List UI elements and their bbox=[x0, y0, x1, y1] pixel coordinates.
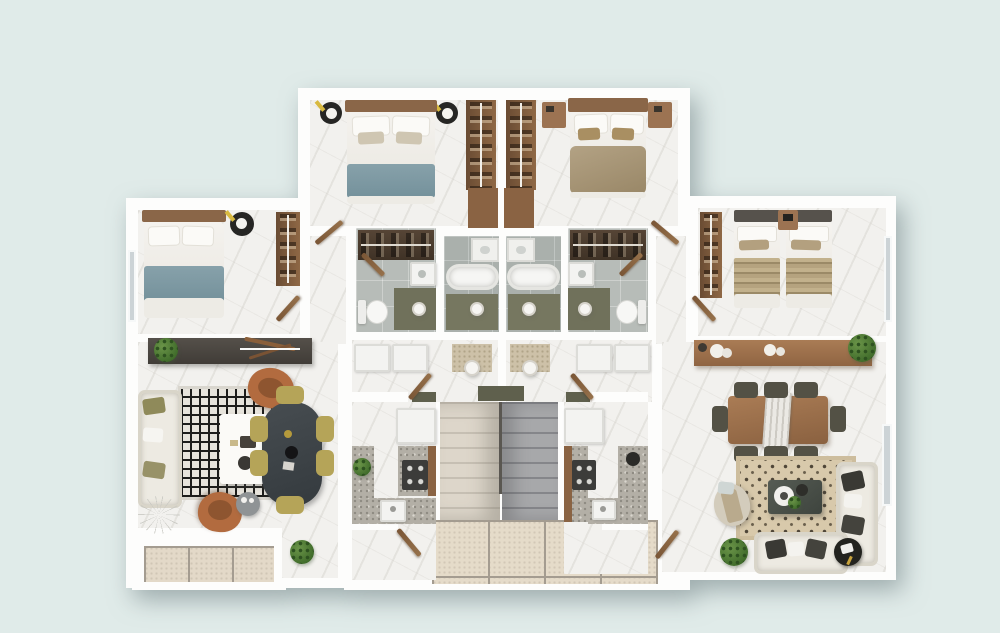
stove-a bbox=[402, 460, 428, 490]
bed-l-headboard bbox=[142, 210, 226, 222]
wardrobe-left-wing bbox=[276, 212, 300, 286]
dining-chair-a-right-2 bbox=[316, 450, 334, 476]
twin-bed-1-headboard bbox=[734, 210, 780, 222]
dining-chair-a-left-1 bbox=[250, 416, 268, 442]
bed-b-blanket-tan bbox=[570, 146, 646, 194]
floor-hall-a bbox=[310, 236, 346, 344]
sofa-a-pillow-olive-2 bbox=[142, 461, 166, 480]
pouf-hall-a bbox=[464, 360, 480, 376]
plant-balcony-a bbox=[290, 540, 314, 564]
twin-bed-1-blanket bbox=[734, 258, 780, 298]
coffee-maker-b bbox=[626, 452, 640, 466]
faucet-b bbox=[600, 506, 606, 512]
closet-bathroom-a1 bbox=[358, 230, 434, 260]
bed-b-foot-sheet bbox=[570, 192, 646, 198]
dining-chair-b-top-2 bbox=[764, 382, 788, 398]
dining-chair-a-top bbox=[276, 386, 304, 404]
armchair-b-pillow bbox=[717, 481, 734, 495]
wardrobe-right-wing bbox=[700, 212, 722, 298]
cabinet-b-wood bbox=[564, 446, 572, 522]
wall-stub-wing-left bbox=[300, 210, 310, 288]
sofa-b-right-pillow-white bbox=[843, 493, 862, 509]
washer-b bbox=[576, 344, 612, 372]
plant-coffee-b bbox=[788, 496, 801, 509]
wardrobe-b-walkin bbox=[506, 100, 536, 190]
bed-a-cushion-right bbox=[396, 131, 423, 144]
stair-rail bbox=[499, 402, 502, 494]
plant-living-b bbox=[720, 538, 748, 566]
sofa-a-pillow-white bbox=[143, 427, 164, 442]
bed-a-headboard bbox=[345, 100, 437, 112]
vase-a bbox=[285, 446, 298, 459]
dining-chair-b-top-1 bbox=[734, 382, 758, 398]
nightstand-b2-decor bbox=[654, 106, 662, 112]
twin-bed-2-blanket bbox=[786, 258, 832, 298]
floor-plan-canvas bbox=[0, 0, 1000, 633]
lamp-l bbox=[236, 218, 247, 229]
stove-b bbox=[572, 460, 596, 490]
decor-b-dark bbox=[796, 484, 808, 496]
plant-sideboard-b bbox=[848, 334, 876, 362]
bed-b-cushion-right bbox=[612, 127, 635, 140]
twin-bed-1-foot bbox=[734, 294, 780, 308]
wardrobe-b-wood-floor bbox=[504, 188, 534, 228]
window-left-wing bbox=[128, 250, 136, 322]
dining-chair-a-right-1 bbox=[316, 416, 334, 442]
pedestal-sink-a1 bbox=[412, 302, 426, 316]
wardrobe-a-wood-floor bbox=[468, 188, 498, 228]
side-table-a-cup-2 bbox=[249, 498, 254, 503]
toilet-a1-bowl bbox=[366, 300, 388, 324]
stair-top-mat bbox=[478, 386, 524, 401]
toilet-b1-bowl bbox=[616, 300, 638, 324]
dryer-b bbox=[614, 344, 650, 372]
window-right-body bbox=[882, 424, 892, 506]
twin-bed-2-cushion bbox=[791, 239, 821, 250]
bathtub-b2 bbox=[507, 264, 560, 290]
bed-a-cushion-left bbox=[358, 131, 385, 144]
bowl-b-4 bbox=[776, 347, 785, 356]
sofa-b-bottom-pillow-white bbox=[788, 541, 805, 556]
faucet-a bbox=[390, 506, 396, 512]
side-table-a bbox=[236, 492, 260, 516]
bed-l-foot-sheet bbox=[144, 298, 224, 318]
sink-b1-basin bbox=[578, 270, 586, 278]
nightstand-b1-decor bbox=[546, 106, 554, 112]
bed-b-cushion-left bbox=[578, 127, 601, 140]
bowl-b-3 bbox=[764, 344, 776, 356]
bed-b-headboard bbox=[568, 98, 648, 112]
bed-l-pillow-left bbox=[148, 225, 181, 246]
decor-dining-a-gold bbox=[284, 430, 292, 438]
decor-dining-a-white bbox=[282, 461, 294, 470]
window-right-wing bbox=[884, 236, 892, 322]
fridge-a bbox=[396, 408, 436, 444]
decor-a-book bbox=[230, 440, 238, 446]
sink-a1-basin bbox=[418, 270, 426, 278]
dining-chair-a-left-2 bbox=[250, 450, 268, 476]
side-table-a-cup-1 bbox=[241, 497, 247, 503]
tablet-on-nightstand bbox=[783, 214, 793, 221]
bathtub-a2 bbox=[446, 264, 499, 290]
plant-kitchen-a bbox=[353, 458, 371, 476]
floor-balcony-tiles bbox=[144, 546, 274, 582]
sofa-a-pillow-olive-1 bbox=[142, 397, 166, 416]
dining-chair-b-left bbox=[712, 406, 728, 432]
fridge-b bbox=[564, 408, 604, 444]
twin-bed-1-cushion bbox=[739, 239, 769, 250]
shower-stall-b2 bbox=[507, 238, 535, 262]
dining-chair-a-bottom bbox=[276, 496, 304, 514]
pedestal-sink-b1 bbox=[578, 302, 592, 316]
cabinet-a-wood bbox=[428, 446, 436, 496]
floor-stairs-down-flight bbox=[502, 402, 558, 520]
pedestal-sink-a2 bbox=[470, 302, 484, 316]
plant-sketch-a bbox=[138, 496, 180, 534]
pouf-hall-b bbox=[522, 360, 538, 376]
table-runner-b bbox=[762, 391, 792, 449]
bowl-b-2 bbox=[722, 348, 732, 358]
tray-b-item bbox=[780, 492, 788, 500]
floor-hall-b bbox=[656, 236, 686, 344]
plant-console-a bbox=[154, 338, 178, 362]
lounge-chair-a-bottom-seat bbox=[208, 500, 232, 520]
washer-a bbox=[354, 344, 390, 372]
lamp-a1 bbox=[326, 108, 337, 119]
ceiling-fan-bar bbox=[240, 348, 300, 350]
twin-bed-2-foot bbox=[786, 294, 832, 308]
pedestal-sink-b2 bbox=[522, 302, 536, 316]
sofa-b-bottom-pillow-1 bbox=[765, 538, 788, 559]
bed-l-pillow-right bbox=[182, 225, 215, 246]
wardrobe-a-walkin bbox=[466, 100, 496, 190]
lamp-a2 bbox=[442, 108, 453, 119]
dining-chair-b-right bbox=[830, 406, 846, 432]
wall-stub-kitchen-b bbox=[592, 392, 648, 402]
vase-b-dark bbox=[698, 343, 707, 352]
toilet-b1-tank bbox=[638, 300, 646, 324]
toilet-a1-tank bbox=[358, 300, 366, 324]
sofa-b-bottom-pillow-2 bbox=[804, 538, 827, 560]
bed-a-foot-sheet bbox=[347, 196, 435, 204]
floor-stairs-up-flight bbox=[440, 402, 500, 520]
dryer-a bbox=[392, 344, 428, 372]
bed-l-blanket-teal bbox=[144, 266, 224, 302]
bed-a-blanket-teal bbox=[347, 164, 435, 198]
dining-chair-b-top-3 bbox=[794, 382, 818, 398]
wall-stub-kitchen-a bbox=[352, 392, 408, 402]
shower-stall-a2 bbox=[471, 238, 499, 262]
